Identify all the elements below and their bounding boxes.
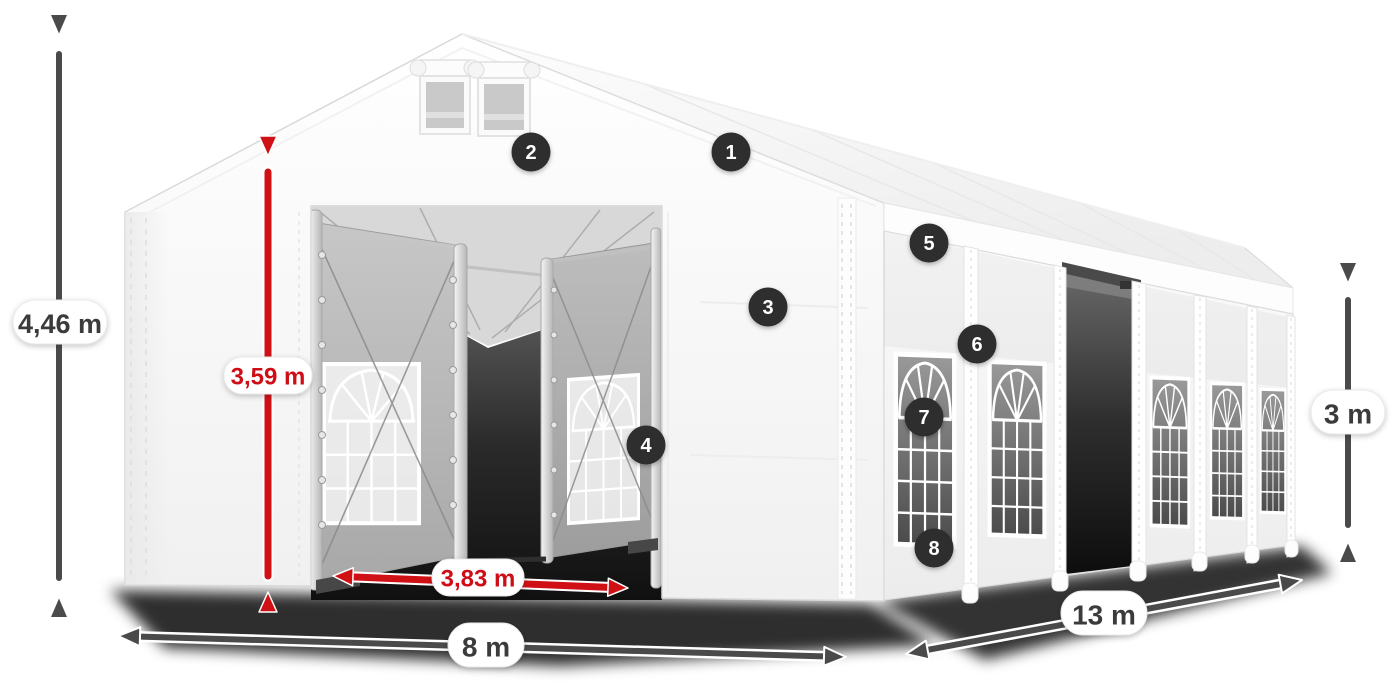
arched-window bbox=[896, 354, 954, 546]
total-height-value: 4,46 m bbox=[18, 309, 102, 339]
tent-illustration: 4,46 m 3,59 m 3,83 m 8 m 13 m 3 m 1 bbox=[0, 0, 1400, 700]
wall-height-value: 3 m bbox=[1324, 399, 1372, 430]
badge-7[interactable]: 7 bbox=[905, 398, 944, 437]
entrance-interior bbox=[309, 206, 662, 600]
arched-window bbox=[1211, 383, 1243, 518]
side-door-opening bbox=[1066, 268, 1132, 574]
label-wall-height: 3 m bbox=[1311, 390, 1385, 434]
entrance-width-value: 3,83 m bbox=[441, 566, 516, 593]
arched-window bbox=[990, 362, 1045, 537]
door-window bbox=[324, 364, 419, 523]
label-entrance-width: 3,83 m bbox=[432, 559, 524, 596]
badge-4[interactable]: 4 bbox=[627, 426, 666, 465]
badge-3-number: 3 bbox=[762, 297, 773, 319]
arched-window bbox=[1151, 378, 1189, 527]
badge-4-number: 4 bbox=[640, 435, 652, 457]
badge-2-number: 2 bbox=[525, 142, 536, 164]
badge-1-number: 1 bbox=[725, 142, 736, 164]
badge-6-number: 6 bbox=[971, 334, 982, 356]
arched-window bbox=[1261, 389, 1285, 513]
badge-8[interactable]: 8 bbox=[915, 529, 954, 568]
label-entrance-height: 3,59 m bbox=[224, 357, 312, 394]
badge-7-number: 7 bbox=[918, 407, 929, 429]
label-front-width: 8 m bbox=[448, 623, 524, 667]
badge-5-number: 5 bbox=[923, 233, 934, 255]
label-side-length: 13 m bbox=[1061, 591, 1147, 635]
side-length-value: 13 m bbox=[1072, 600, 1136, 631]
tent-dimension-diagram: 4,46 m 3,59 m 3,83 m 8 m 13 m 3 m 1 bbox=[0, 0, 1400, 700]
badge-8-number: 8 bbox=[928, 538, 939, 560]
front-width-value: 8 m bbox=[462, 632, 510, 663]
entrance-door-right bbox=[546, 242, 660, 558]
badge-5[interactable]: 5 bbox=[910, 224, 949, 263]
entrance-door-left bbox=[312, 222, 462, 586]
corner-post-cover bbox=[838, 198, 856, 599]
entrance-height-value: 3,59 m bbox=[231, 364, 306, 391]
label-total-height: 4,46 m bbox=[13, 300, 107, 344]
badge-2[interactable]: 2 bbox=[512, 133, 551, 172]
badge-6[interactable]: 6 bbox=[958, 325, 997, 364]
badge-1[interactable]: 1 bbox=[712, 133, 751, 172]
badge-3[interactable]: 3 bbox=[749, 288, 788, 327]
vent-window bbox=[468, 62, 540, 136]
